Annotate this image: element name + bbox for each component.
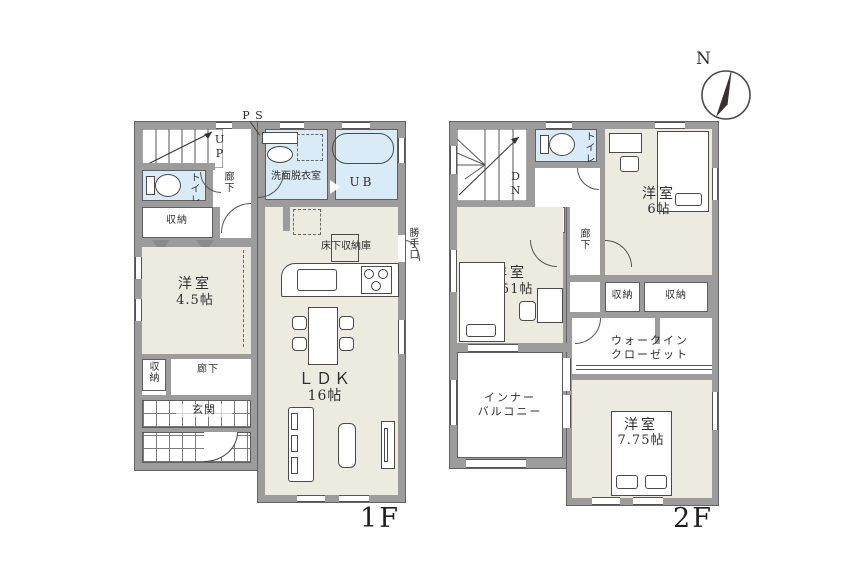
f1-stove-burner	[371, 281, 381, 291]
f2-wic-line2: クローゼット	[600, 349, 700, 362]
f2-window	[633, 497, 663, 505]
f1-ldk-size: 16帖	[285, 388, 365, 404]
f2-window	[466, 459, 526, 468]
f1-dining-chair	[339, 316, 354, 330]
f1-floor-label: 1F	[355, 503, 405, 534]
f1-room45-name: 洋室	[142, 276, 248, 292]
floor-plan-canvas: N UP	[0, 0, 850, 570]
f1-window	[216, 122, 232, 129]
f2-window	[592, 497, 620, 505]
f2-toilet-tank	[540, 135, 549, 154]
f1-window	[398, 320, 405, 354]
f2-dn-label: DN	[510, 170, 521, 198]
f1-entrance-label: 玄関	[176, 404, 232, 417]
f1-sofa-cushion	[291, 435, 298, 452]
f1-kitchen-dash-space	[293, 209, 321, 235]
f2-balcony-slider	[562, 395, 571, 428]
f2-wic-line1: ウォークイン	[600, 335, 700, 348]
f1-room45-closet-dash	[243, 250, 246, 347]
f1-backdoor-label: 勝手口	[407, 227, 417, 260]
f2-wall	[527, 129, 535, 201]
f1-dining-chair	[292, 337, 307, 351]
f2-room6-name: 洋室	[625, 186, 693, 202]
f2-desk-6	[609, 133, 642, 153]
f1-window	[135, 299, 142, 321]
f1-window	[342, 122, 370, 129]
f1-hall-lower-label: 廊下	[186, 364, 230, 376]
f1-sofa-cushion	[291, 413, 298, 430]
f1-toilet-tank	[146, 176, 155, 195]
f1-coffee-table	[338, 423, 356, 468]
f2-balcony-line2: バルコニー	[470, 406, 550, 419]
f1-stove-burner	[378, 269, 388, 279]
f1-toilet-bowl	[155, 174, 181, 197]
f2-chair-6	[620, 156, 639, 172]
f2-room6-size: 6帖	[625, 203, 693, 218]
f1-wall	[283, 207, 290, 231]
f1-room45-size: 4.5帖	[142, 294, 248, 309]
f1-dining-chair	[292, 316, 307, 330]
f2-window	[712, 168, 718, 200]
f2-window	[450, 250, 457, 292]
f2-chair-551	[519, 301, 536, 321]
f1-backdoor-opening	[398, 235, 405, 262]
f2-floor-label: 2F	[668, 503, 718, 534]
f1-storage-lower-label: 収納	[147, 361, 157, 383]
f1-sofa-cushion	[291, 457, 298, 474]
f2-window	[468, 344, 518, 352]
f1-tv	[384, 428, 388, 462]
f1-stove-burner	[364, 269, 374, 279]
f2-window	[450, 380, 457, 425]
f1-bath-label: UB	[340, 176, 384, 190]
f1-window	[280, 122, 304, 129]
f2-balcony-slider	[562, 358, 571, 391]
f2-pillow-775	[616, 475, 638, 489]
compass-north-label: N	[696, 50, 712, 70]
f1-storage-upper-label: 収納	[152, 215, 202, 227]
f2-storage-b-label: 収納	[644, 290, 708, 302]
f2-window	[655, 122, 685, 129]
f2-pillow-775	[645, 475, 667, 489]
f1-hall-upper-label: 廊下	[222, 171, 232, 193]
f1-bathtub	[332, 133, 394, 164]
f2-wall	[567, 275, 718, 282]
f2-toilet-bowl	[549, 133, 575, 156]
f1-dining-table	[308, 307, 338, 365]
f1-up-label: UP	[214, 133, 225, 161]
f2-room-western-5-51-upper	[457, 207, 506, 240]
f1-kitchen-sink	[297, 269, 337, 291]
f1-window	[135, 257, 142, 279]
f2-toilet-label: トイレ	[583, 131, 593, 164]
f1-washer-space	[297, 134, 323, 161]
f2-pillow-551	[466, 324, 496, 337]
f2-desk-551	[537, 288, 563, 323]
f1-wall	[135, 163, 215, 170]
f1-wall	[213, 207, 220, 238]
f2-window	[712, 392, 718, 430]
f2-balcony-line1: インナー	[470, 392, 550, 405]
f2-room775-size: 7.75帖	[607, 434, 675, 449]
f2-storage-a-label: 収納	[605, 290, 640, 302]
f1-window	[398, 138, 405, 163]
f1-bath-door-mark	[330, 180, 340, 194]
f1-window	[339, 495, 369, 502]
compass: N	[690, 48, 770, 128]
f2-hall-label: 廊下	[578, 228, 588, 250]
f1-vanity-counter	[262, 132, 298, 144]
f2-window	[450, 146, 457, 174]
f1-window	[297, 495, 325, 502]
f2-hall-corridor	[570, 207, 600, 317]
f2-wic-hanger-pipe	[576, 365, 712, 370]
f1-ps-label: P S	[240, 110, 266, 123]
f2-window	[546, 122, 572, 129]
f1-dining-chair	[339, 337, 354, 351]
f1-underfloor-storage-label: 床下収納庫	[308, 241, 384, 253]
f2-room775-name: 洋室	[607, 417, 675, 433]
f1-vanity-sink	[267, 146, 293, 163]
f1-ldk-name: ＬＤＫ	[285, 370, 365, 388]
